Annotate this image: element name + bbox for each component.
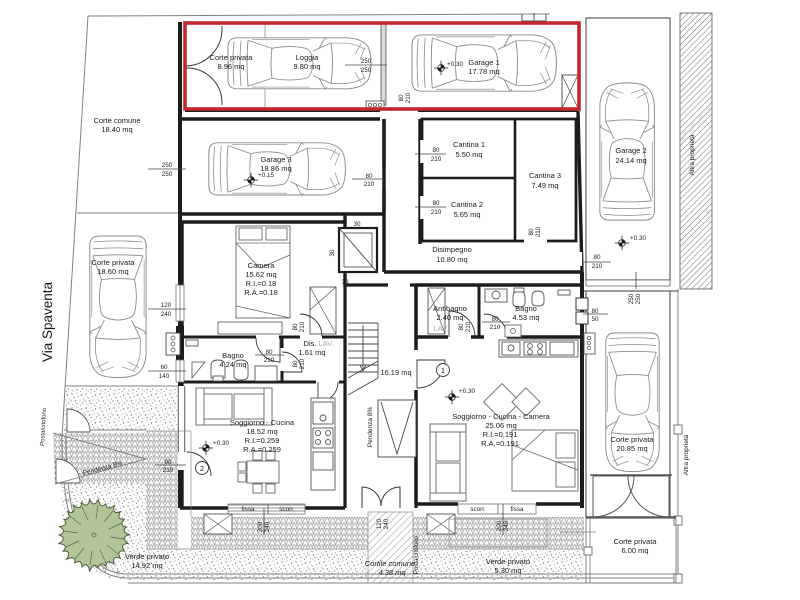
svg-text:240: 240 bbox=[383, 518, 390, 529]
svg-text:Corte comune: Corte comune bbox=[93, 116, 140, 125]
svg-text:4.24 mq: 4.24 mq bbox=[219, 360, 246, 369]
svg-text:250: 250 bbox=[162, 171, 173, 178]
svg-text:18.60 mq: 18.60 mq bbox=[97, 267, 128, 276]
svg-text:Cantina 1: Cantina 1 bbox=[453, 140, 485, 149]
svg-text:50: 50 bbox=[591, 316, 599, 323]
svg-text:R.I.=0.259: R.I.=0.259 bbox=[245, 436, 280, 445]
svg-text:60: 60 bbox=[160, 364, 168, 371]
svg-text:fissa: fissa bbox=[242, 506, 255, 513]
svg-text:+0.15: +0.15 bbox=[258, 172, 274, 179]
svg-text:scorr.: scorr. bbox=[470, 506, 486, 513]
svg-text:Cantina 2: Cantina 2 bbox=[451, 200, 483, 209]
svg-text:9.80 mq: 9.80 mq bbox=[293, 62, 320, 71]
svg-text:Antibagno: Antibagno bbox=[433, 304, 467, 313]
svg-text:210: 210 bbox=[299, 358, 306, 369]
svg-text:200: 200 bbox=[496, 520, 503, 531]
svg-text:+0.30: +0.30 bbox=[447, 61, 463, 68]
svg-text:80: 80 bbox=[432, 200, 440, 207]
svg-text:Altra proprietà: Altra proprietà bbox=[683, 434, 690, 475]
svg-text:Soggiorno - Cucina - Camera: Soggiorno - Cucina - Camera bbox=[452, 412, 550, 421]
svg-text:80: 80 bbox=[432, 147, 440, 154]
svg-text:5.30 mq: 5.30 mq bbox=[494, 566, 521, 575]
svg-text:Garage 2: Garage 2 bbox=[615, 146, 646, 155]
svg-text:120: 120 bbox=[376, 518, 383, 529]
svg-text:Garage 1: Garage 1 bbox=[468, 58, 499, 67]
svg-text:210: 210 bbox=[299, 321, 306, 332]
svg-text:LAV.: LAV. bbox=[433, 324, 448, 333]
svg-text:250: 250 bbox=[162, 162, 173, 169]
svg-text:Corte privata: Corte privata bbox=[210, 53, 254, 62]
svg-text:Soggiorno - Cucina: Soggiorno - Cucina bbox=[230, 418, 295, 427]
svg-text:30: 30 bbox=[341, 279, 349, 286]
svg-text:8.96 mq: 8.96 mq bbox=[217, 62, 244, 71]
svg-text:240: 240 bbox=[503, 520, 510, 531]
svg-text:15.62 mq: 15.62 mq bbox=[245, 270, 276, 279]
svg-text:210: 210 bbox=[364, 181, 375, 188]
svg-text:Verde privato: Verde privato bbox=[125, 552, 169, 561]
svg-text:+0.30: +0.30 bbox=[213, 440, 229, 447]
svg-text:30: 30 bbox=[329, 249, 336, 257]
svg-text:Corte privata: Corte privata bbox=[611, 435, 655, 444]
svg-text:24.14 mq: 24.14 mq bbox=[615, 156, 646, 165]
svg-text:Pendenza 8%: Pendenza 8% bbox=[367, 407, 374, 448]
svg-text:240: 240 bbox=[161, 311, 172, 318]
svg-text:80: 80 bbox=[528, 228, 535, 236]
svg-text:R.A.=0.259: R.A.=0.259 bbox=[243, 445, 281, 454]
svg-text:20.85 mq: 20.85 mq bbox=[616, 444, 647, 453]
svg-text:210: 210 bbox=[490, 324, 501, 331]
svg-text:2: 2 bbox=[200, 464, 204, 473]
svg-text:4.38 mq: 4.38 mq bbox=[378, 568, 406, 577]
svg-text:Dis.: Dis. bbox=[304, 339, 317, 348]
svg-text:R.I.=0.18: R.I.=0.18 bbox=[246, 279, 277, 288]
svg-text:Corte privata: Corte privata bbox=[92, 258, 136, 267]
svg-text:210: 210 bbox=[264, 357, 275, 364]
svg-text:80: 80 bbox=[458, 323, 465, 331]
svg-text:210: 210 bbox=[592, 263, 603, 270]
svg-text:200: 200 bbox=[257, 521, 264, 532]
svg-text:Bagno: Bagno bbox=[222, 351, 244, 360]
svg-text:25.06 mq: 25.06 mq bbox=[485, 421, 516, 430]
svg-text:140: 140 bbox=[159, 373, 170, 380]
svg-text:fissa: fissa bbox=[511, 506, 524, 513]
svg-text:Cantina 3: Cantina 3 bbox=[529, 171, 561, 180]
svg-text:250: 250 bbox=[635, 293, 642, 304]
svg-text:210: 210 bbox=[431, 156, 442, 163]
svg-text:210: 210 bbox=[535, 226, 542, 237]
svg-text:5.50 mq: 5.50 mq bbox=[455, 150, 482, 159]
svg-text:R.A.=0.191: R.A.=0.191 bbox=[481, 439, 519, 448]
svg-text:7.49 mq: 7.49 mq bbox=[531, 181, 558, 190]
svg-text:Cortile comune: Cortile comune bbox=[365, 559, 415, 568]
svg-text:Altra proprietà: Altra proprietà bbox=[689, 134, 696, 175]
svg-text:18.52 mq: 18.52 mq bbox=[246, 427, 277, 436]
svg-text:LAV.: LAV. bbox=[318, 339, 333, 348]
svg-text:30: 30 bbox=[353, 221, 361, 228]
svg-text:250: 250 bbox=[628, 293, 635, 304]
svg-text:210: 210 bbox=[465, 321, 472, 332]
svg-text:R.I.=0.191: R.I.=0.191 bbox=[483, 430, 518, 439]
svg-text:Camera: Camera bbox=[248, 261, 276, 270]
svg-text:80: 80 bbox=[398, 94, 405, 102]
svg-text:scorr.: scorr. bbox=[279, 506, 295, 513]
svg-text:18.86 mq: 18.86 mq bbox=[260, 164, 291, 173]
svg-text:+0.30: +0.30 bbox=[459, 388, 475, 395]
svg-text:17.78 mq: 17.78 mq bbox=[468, 67, 499, 76]
svg-text:1.61 mq: 1.61 mq bbox=[298, 348, 325, 357]
svg-text:14.92 mq: 14.92 mq bbox=[131, 561, 162, 570]
svg-text:2.40 mq: 2.40 mq bbox=[436, 313, 463, 322]
svg-text:Garage 3: Garage 3 bbox=[260, 155, 291, 164]
svg-text:Disimpegno: Disimpegno bbox=[432, 245, 472, 254]
svg-text:210: 210 bbox=[405, 92, 412, 103]
svg-text:240: 240 bbox=[264, 521, 271, 532]
svg-text:6.00 mq: 6.00 mq bbox=[621, 546, 648, 555]
svg-text:10.80 mq: 10.80 mq bbox=[436, 255, 467, 264]
svg-text:250: 250 bbox=[361, 67, 372, 74]
svg-text:Loggia: Loggia bbox=[296, 53, 319, 62]
svg-text:1: 1 bbox=[441, 366, 445, 375]
svg-text:Via Spaventa: Via Spaventa bbox=[40, 281, 55, 362]
svg-text:5.65 mq: 5.65 mq bbox=[453, 210, 480, 219]
svg-text:Verde privato: Verde privato bbox=[486, 557, 530, 566]
svg-text:Bagno: Bagno bbox=[515, 304, 537, 313]
svg-text:250: 250 bbox=[361, 58, 372, 65]
svg-text:4.53 mq: 4.53 mq bbox=[512, 313, 539, 322]
svg-text:80: 80 bbox=[292, 323, 299, 331]
svg-text:Corte privata: Corte privata bbox=[614, 537, 658, 546]
svg-text:R.A.=0.18: R.A.=0.18 bbox=[244, 288, 278, 297]
svg-text:+0.30: +0.30 bbox=[630, 235, 646, 242]
svg-text:Posta/citofono: Posta/citofono bbox=[414, 535, 420, 574]
svg-text:16.19 mq: 16.19 mq bbox=[380, 368, 411, 377]
svg-text:80: 80 bbox=[593, 254, 601, 261]
svg-text:210: 210 bbox=[431, 209, 442, 216]
svg-text:120: 120 bbox=[161, 302, 172, 309]
svg-text:80: 80 bbox=[292, 360, 299, 368]
svg-text:210: 210 bbox=[163, 467, 174, 474]
svg-text:18.40 mq: 18.40 mq bbox=[101, 125, 132, 134]
